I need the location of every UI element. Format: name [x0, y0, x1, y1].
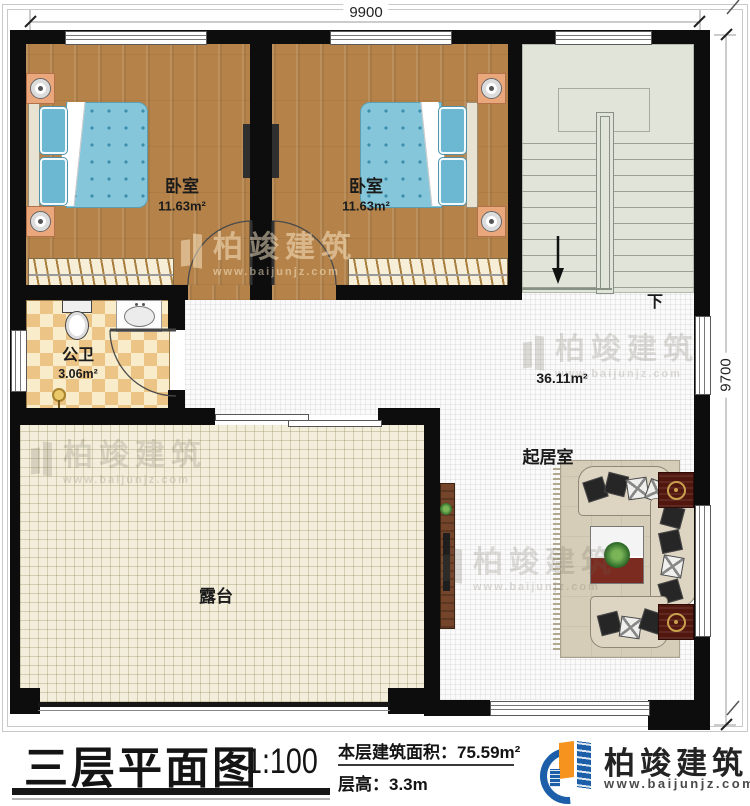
toilet-bowl: [65, 311, 89, 340]
nightstand-lamp: [26, 73, 55, 104]
dimension-top-label: 9900: [343, 4, 388, 21]
bed-headboard: [28, 102, 40, 208]
bedroom1-door-threshold: [188, 285, 252, 300]
lamp-icon: [481, 211, 502, 232]
bathroom-label: 公卫: [62, 347, 94, 365]
floor-area-value: 75.59m²: [457, 743, 520, 762]
stair-flight-left: [522, 128, 596, 290]
wall-bedroom2-stairs: [508, 44, 522, 300]
company-website: www.baijunjz.com: [604, 776, 750, 791]
company-logo-icon: [540, 736, 600, 798]
floor-area-row: 本层建筑面积：75.59m²: [338, 738, 520, 763]
side-table: [658, 604, 694, 640]
wall-bathroom-right-upper: [168, 300, 185, 330]
living-label: 起居室: [523, 448, 574, 468]
nightstand-lamp: [477, 73, 506, 104]
bed-pillow: [439, 107, 466, 154]
lamp-icon: [481, 78, 502, 99]
sink-basin: [124, 306, 155, 327]
plant-icon: [440, 503, 452, 515]
wall-bedroom1-south: [10, 285, 188, 300]
plan-scale: 1:100: [246, 742, 318, 782]
terrace-parapet-post: [388, 688, 424, 714]
wall-terrace-left: [10, 425, 20, 714]
bathroom-area: 3.06m²: [58, 367, 98, 381]
bedroom1-wall-tv: [243, 124, 250, 178]
floor-plan-canvas: 9900 9700 卧室 11.63m² 卧室 11.63m² 公卫 3.06m…: [0, 0, 750, 806]
side-table: [658, 472, 694, 508]
bedroom1-label: 卧室: [165, 177, 199, 197]
stair-flight-right: [612, 128, 694, 290]
sofa-right: [650, 498, 696, 606]
rug-fringe: [553, 466, 560, 650]
bed-pillow: [439, 158, 466, 205]
bed-pillow: [40, 107, 67, 154]
staircase-area: [522, 44, 694, 293]
wall-living-south-right: [648, 700, 710, 730]
bathroom-sink: [116, 300, 162, 332]
sofa-bottom: [590, 596, 668, 648]
terrace-floor: [20, 425, 424, 702]
window-living-south: [490, 701, 650, 716]
lamp-icon: [30, 78, 51, 99]
title-underline-thin: [12, 798, 330, 800]
living-area: 36.11m²: [536, 370, 587, 386]
bedroom2-wall-tv: [272, 124, 279, 178]
table-plant-icon: [604, 542, 630, 568]
dimension-right-label: 9700: [718, 352, 735, 397]
bedroom2-label: 卧室: [349, 177, 383, 197]
wall-living-south-left: [440, 700, 490, 716]
stair-bottom-edge: [522, 288, 612, 290]
title-underline-thick: [12, 788, 330, 795]
sliding-door-panel: [288, 420, 382, 427]
logo-tower-blue: [574, 737, 594, 794]
wall-terrace-living-divider: [424, 415, 440, 716]
toilet: [62, 300, 92, 342]
title-block-separator: [338, 764, 514, 766]
wall-bedroom2-south: [336, 285, 508, 300]
logo-base-blue: [548, 766, 562, 790]
nightstand-lamp: [26, 206, 55, 237]
hallway-floor: [185, 293, 694, 415]
window-hall-east: [695, 316, 711, 395]
stairs-down-label: 下: [647, 294, 663, 312]
floor-height-label: 层高：: [338, 775, 389, 794]
bedroom1-area: 11.63m²: [158, 200, 206, 215]
bed-pillow: [40, 158, 67, 205]
floor-area-label: 本层建筑面积：: [338, 743, 457, 762]
floor-height-value: 3.3m: [389, 775, 428, 794]
bed-headboard: [466, 102, 478, 208]
floor-height-row: 层高：3.3m: [338, 770, 428, 795]
window-living-east: [695, 505, 711, 637]
bedroom2-area: 11.63m²: [342, 200, 390, 215]
bedroom1-bed: [28, 102, 146, 206]
window-bedroom1: [65, 31, 207, 45]
tv: [443, 533, 450, 591]
terrace-label: 露台: [199, 587, 233, 607]
lamp-icon: [30, 211, 51, 232]
coffee-table: [590, 526, 644, 584]
terrace-parapet-rail: [38, 702, 390, 707]
stair-center-rail-inner: [600, 116, 610, 290]
wall-bathroom-south: [10, 408, 215, 425]
stair-center-rail: [596, 112, 614, 294]
window-stairs: [555, 31, 652, 45]
plan-title: 三层平面图: [24, 732, 259, 796]
terrace-parapet-line: [38, 710, 390, 711]
terrace-parapet-post: [10, 688, 40, 714]
bedroom2-door-threshold: [272, 285, 336, 300]
nightstand-lamp: [477, 206, 506, 237]
wall-bedroom-divider: [250, 44, 272, 300]
window-bedroom2: [330, 31, 452, 45]
window-bathroom: [11, 330, 27, 392]
